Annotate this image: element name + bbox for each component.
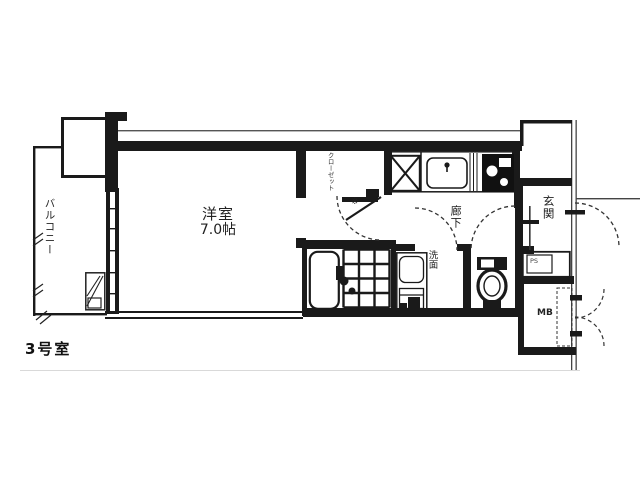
stove [482,154,514,192]
western-room-label: 洋室 7.0帖 [178,206,258,238]
washing-machine-space [391,156,420,191]
toilet [477,257,507,308]
meter-box-label: MB [537,309,553,319]
faint-baseline [20,370,580,371]
entrance-label: 玄関 [542,195,555,241]
entrance-step [521,206,539,250]
meter-box [557,288,604,346]
tap-symbol: ※ [351,198,359,208]
balcony-hatch-unit [86,273,105,310]
balcony-label: バルコニー [43,198,55,276]
entrance-door-arc [575,203,619,247]
pipe-space-label: PS [530,258,538,265]
meter-box-door-arc-top [575,289,604,318]
kitchen-sink [427,158,467,188]
hallway-label: 廊下 [449,205,461,241]
closet-label: クローゼット [326,152,333,204]
western-room-size: 7.0帖 [178,223,258,238]
unit-number-label: 3号室 [25,341,71,358]
bathtub [310,252,339,309]
washroom-label: 洗面 [426,250,436,280]
floor-plan: 洋室 7.0帖 バルコニー クローゼット 廊下 玄関 洗面 PS MB ※ 3号… [0,0,640,480]
bath-grid [344,250,390,308]
western-room-name: 洋室 [178,206,258,223]
toilet-door-arc [471,206,515,250]
window-sash [106,188,119,314]
entrance-door-leaf [565,210,585,215]
washbasin [397,253,427,311]
walls [33,112,576,355]
unit-bath [305,247,394,314]
